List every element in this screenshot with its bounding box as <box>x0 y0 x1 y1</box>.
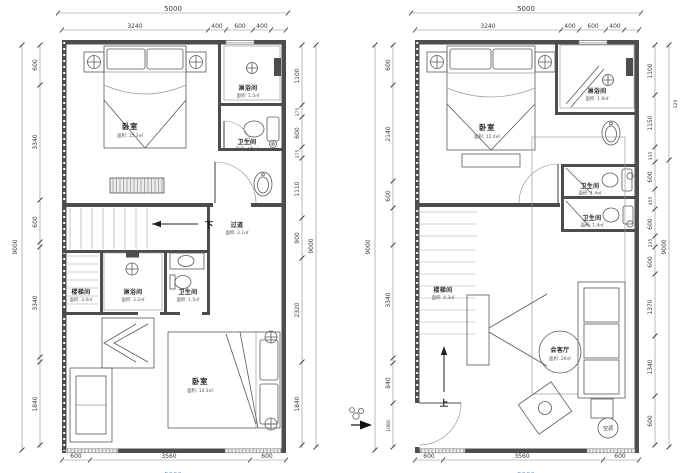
dim-label: 175 <box>295 108 301 117</box>
dim-label: 600 <box>647 218 654 230</box>
dim-label: 175 <box>295 150 301 159</box>
entry-door-icon <box>350 403 461 445</box>
dim-right-total: 9000 <box>661 239 668 254</box>
ac-label: 空调 <box>603 425 613 432</box>
entry-arrow-icon <box>360 421 372 430</box>
dim-label: 2140 <box>385 126 392 141</box>
room-area: 面积: 20㎡ <box>549 355 571 362</box>
room-label-stairwell: 楼梯间 <box>434 286 453 294</box>
door-icon <box>519 164 558 203</box>
bed-icon <box>168 332 280 428</box>
bathroom-upper <box>566 168 633 194</box>
dim-label: 335 <box>648 152 654 161</box>
up-arrow-icon <box>441 346 447 392</box>
room-label-bedroom-upper: 卧室 <box>122 121 138 131</box>
dim-label: 840 <box>385 377 392 389</box>
room-area: 面积: 4.3㎡ <box>431 294 455 301</box>
dim-label: 1110 <box>294 181 301 196</box>
dim-label: 1100 <box>294 68 301 83</box>
bed-icon <box>447 46 535 167</box>
sofa-icon <box>578 282 625 398</box>
dim-label: 120 <box>673 100 679 109</box>
dim-label: 600 <box>70 453 82 460</box>
dim-label: 3340 <box>32 295 39 310</box>
room-area: 面积: 3.0㎡ <box>69 296 93 303</box>
dim-label: 600 <box>294 127 301 139</box>
dim-label: 3560 <box>514 453 529 460</box>
dim-label: 600 <box>647 415 654 427</box>
dim-label: 1080 <box>386 420 392 432</box>
room-label-bedroom: 卧室 <box>479 122 495 132</box>
ceiling-fan-icon <box>427 52 447 72</box>
dim-label: 600 <box>234 23 246 30</box>
room-area: 面积: 2.2㎡ <box>121 296 145 303</box>
ceiling-fan-icon <box>265 331 277 343</box>
dim-label: 3240 <box>127 23 142 30</box>
dim-label: 900 <box>294 232 301 244</box>
room-area: 面积: 1.5㎡ <box>235 146 259 153</box>
room-label-bath-lower: 卫生间 <box>583 214 602 222</box>
stair-direction-label: 下 <box>205 221 214 231</box>
room-area: 面积: 12.4㎡ <box>474 133 500 140</box>
room-area: 面积: 1.4㎡ <box>580 222 604 229</box>
room-label-shower-upper: 淋浴间 <box>239 84 258 92</box>
shower-head-icon <box>126 253 139 258</box>
down-arrow-icon <box>152 221 198 227</box>
dim-label: 400 <box>211 23 223 30</box>
door-icon <box>215 162 256 203</box>
dim-label: 600 <box>32 59 39 71</box>
dim-label: 400 <box>564 23 576 30</box>
right-floor-plan: 5000 3240 400 600 400 9000 600 2140 600 … <box>347 0 694 473</box>
dim-left-total: 9000 <box>365 239 372 254</box>
dim-label: 600 <box>261 453 273 460</box>
window-icon <box>587 449 635 453</box>
dim-label: 1840 <box>32 396 39 411</box>
ceiling-fan-icon <box>186 52 206 72</box>
stair-direction-label: 上 <box>440 398 449 409</box>
ceiling-fan-icon <box>265 418 277 430</box>
room-label-stairwell: 楼梯间 <box>72 288 91 296</box>
shower-head-icon <box>274 58 281 76</box>
dim-top-total: 5000 <box>164 5 182 13</box>
bathroom-lower-fixtures <box>170 253 204 289</box>
dim-label: 1150 <box>647 115 654 130</box>
room-label-corridor: 过道 <box>231 221 244 229</box>
sink-icon <box>178 256 194 267</box>
toilet-icon <box>622 169 632 191</box>
room-label-shower-lower: 淋浴间 <box>124 288 143 296</box>
dim-label: 400 <box>256 23 268 30</box>
toilet-icon <box>170 275 175 289</box>
dim-right-total: 9000 <box>308 238 315 253</box>
room-area: 面积: 15.3㎡ <box>117 132 143 139</box>
room-label-living: 会客厅 <box>551 346 570 354</box>
shower-head-icon <box>626 58 633 76</box>
armchair-icon <box>70 368 112 442</box>
room-area: 面积: 1.5㎡ <box>176 296 200 303</box>
dim-left-total: 9000 <box>12 239 19 254</box>
room-area: 面积: 14.3㎡ <box>187 387 213 394</box>
floor-drain-icon <box>270 141 277 148</box>
dim-label: 1370 <box>647 299 654 314</box>
dim-label: 3340 <box>32 134 39 149</box>
room-label-bedroom-lower: 卧室 <box>192 376 208 386</box>
dim-label: 600 <box>385 59 392 71</box>
dim-label: 600 <box>32 216 39 228</box>
desk-chair-icon <box>518 382 571 434</box>
room-label-bath-upper: 卫生间 <box>238 138 257 146</box>
bench-icon <box>462 154 520 167</box>
door-icon <box>566 168 592 194</box>
plant-icon <box>350 408 364 420</box>
room-area: 面积: 1.9㎡ <box>585 95 609 102</box>
coffee-table-icon <box>591 399 613 418</box>
dim-label: 600 <box>614 453 626 460</box>
dim-top-total: 5000 <box>517 5 535 13</box>
room-area: 面积: 1.4㎡ <box>578 190 602 197</box>
dim-label: 400 <box>609 23 621 30</box>
dim-label: 600 <box>647 256 654 268</box>
dim-label: 600 <box>385 190 392 202</box>
sink-icon <box>602 121 620 145</box>
room-area: 面积: 2.1㎡ <box>225 229 249 236</box>
dim-label: 3340 <box>385 292 392 307</box>
dim-label: 3240 <box>480 23 495 30</box>
dim-label: 1840 <box>294 396 301 411</box>
room-label-shower: 淋浴间 <box>588 87 607 95</box>
left-floor-plan: 5000 3240 400 600 400 9000 600 3340 600 … <box>0 0 347 473</box>
room-area: 面积: 1.5㎡ <box>236 92 260 99</box>
room-label-bath-lower: 卫生间 <box>179 288 198 296</box>
dim-label: 600 <box>587 23 599 30</box>
dim-label: 1100 <box>647 63 654 78</box>
room-label-bath-upper: 卫生间 <box>581 182 600 190</box>
dim-label: 600 <box>647 171 654 183</box>
dim-label: 455 <box>648 197 654 206</box>
dim-label: 2320 <box>294 302 301 317</box>
bed-icon <box>104 46 186 148</box>
ceiling-fan-icon <box>84 52 104 72</box>
dim-label: 3560 <box>161 453 176 460</box>
sink-icon <box>254 172 272 196</box>
dim-label: 1340 <box>647 359 654 374</box>
radiator-icon <box>110 178 164 193</box>
stairs-icon <box>66 208 154 368</box>
ceiling-fan-icon <box>535 52 555 72</box>
floor-plans-canvas: 5000 3240 400 600 400 9000 600 3340 600 … <box>0 0 694 473</box>
dim-label: 600 <box>423 453 435 460</box>
dim-label: 235 <box>648 239 654 248</box>
